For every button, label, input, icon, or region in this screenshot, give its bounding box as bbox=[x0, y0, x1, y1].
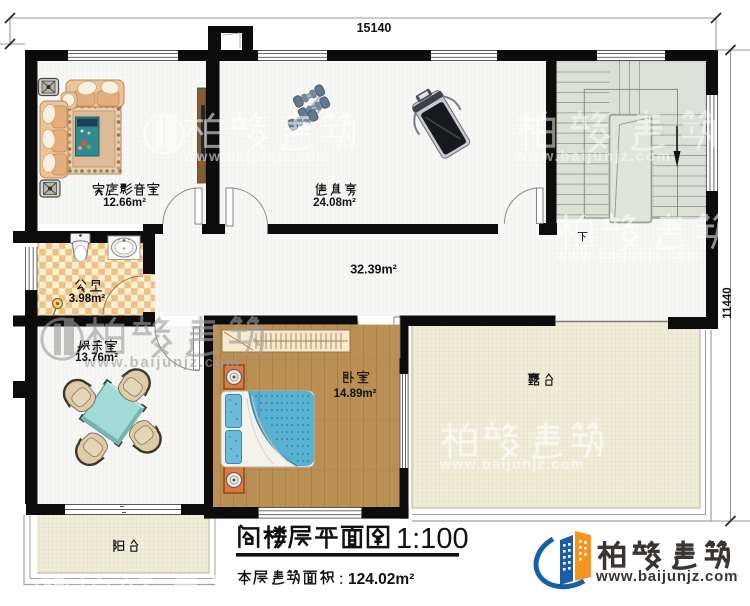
svg-text:3.98m²: 3.98m² bbox=[69, 293, 106, 305]
svg-text:www.baijunjz.com: www.baijunjz.com bbox=[439, 455, 585, 471]
svg-text:12.66m²: 12.66m² bbox=[103, 197, 146, 209]
svg-text:15140: 15140 bbox=[357, 21, 392, 35]
svg-text:11440: 11440 bbox=[722, 287, 734, 318]
svg-text:www.baijunjz.com: www.baijunjz.com bbox=[514, 148, 672, 165]
svg-text:www.baijunjz.com: www.baijunjz.com bbox=[555, 246, 701, 262]
svg-text:24.08m²: 24.08m² bbox=[313, 197, 356, 209]
svg-text:13.76m²: 13.76m² bbox=[75, 352, 118, 364]
svg-text:124.02m²: 124.02m² bbox=[348, 571, 414, 588]
svg-text:1:100: 1:100 bbox=[396, 523, 469, 555]
svg-text:www.baijunjz.com: www.baijunjz.com bbox=[595, 568, 738, 585]
svg-text:14.89m²: 14.89m² bbox=[334, 388, 377, 400]
svg-text:www.baijunjz.com: www.baijunjz.com bbox=[183, 148, 330, 164]
svg-text:32.39m²: 32.39m² bbox=[350, 263, 397, 277]
